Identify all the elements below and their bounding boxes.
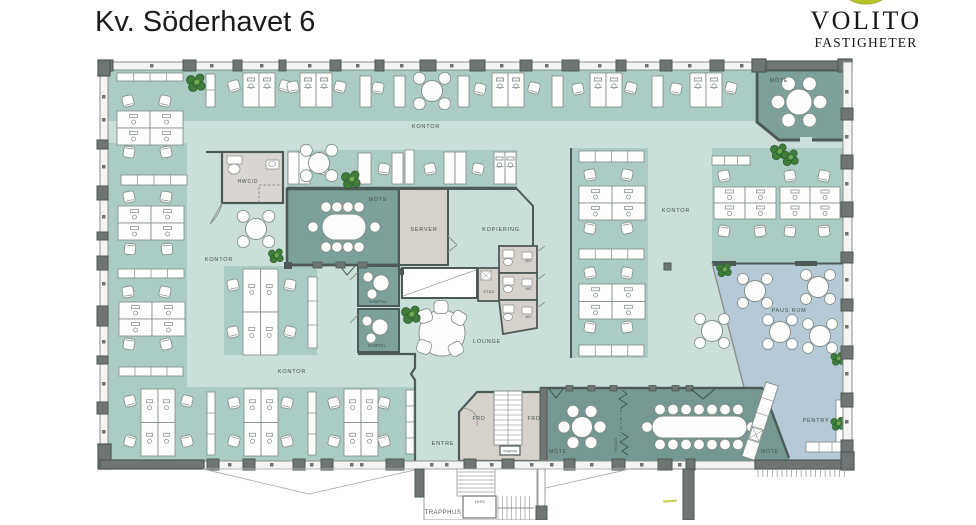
svg-text:Kv. Söderhavet 6: Kv. Söderhavet 6 (95, 6, 315, 38)
svg-text:WC: WC (526, 259, 533, 263)
svg-text:KONTOR: KONTOR (412, 124, 440, 130)
svg-text:MÖTE: MÖTE (770, 77, 788, 84)
svg-text:STÄD: STÄD (483, 290, 494, 294)
svg-text:PENTRY: PENTRY (802, 418, 829, 424)
svg-text:KONTOR: KONTOR (205, 257, 233, 263)
svg-text:WC: WC (526, 315, 533, 319)
svg-text:KONTOR: KONTOR (662, 208, 690, 214)
svg-text:SERVER: SERVER (410, 227, 437, 233)
svg-text:VOLITO: VOLITO (810, 6, 921, 35)
svg-text:FRD: FRD (472, 416, 485, 422)
svg-text:FASTIGHETER: FASTIGHETER (815, 35, 918, 50)
svg-text:MÖTE: MÖTE (368, 196, 387, 203)
svg-text:VIKVÄGG: VIKVÄGG (614, 437, 618, 452)
svg-text:SAMTAL: SAMTAL (368, 343, 387, 348)
svg-text:MÖTE: MÖTE (549, 448, 567, 455)
svg-text:ENTRE: ENTRE (432, 441, 455, 447)
svg-text:HISS: HISS (475, 499, 485, 504)
svg-text:PAUS RUM: PAUS RUM (771, 308, 806, 314)
svg-text:TRAPPA: TRAPPA (503, 450, 518, 454)
svg-text:WC: WC (526, 287, 533, 291)
svg-text:MÖTE: MÖTE (761, 448, 779, 455)
svg-text:KONTOR: KONTOR (278, 369, 306, 375)
svg-text:LOUNGE: LOUNGE (473, 339, 501, 345)
svg-text:HWC/D: HWC/D (238, 179, 259, 185)
svg-text:KOPIERING: KOPIERING (482, 227, 520, 233)
svg-text:SAMTAL: SAMTAL (369, 299, 388, 304)
svg-text:TRAPPHUS: TRAPPHUS (425, 510, 462, 516)
svg-text:FRD: FRD (527, 416, 540, 422)
